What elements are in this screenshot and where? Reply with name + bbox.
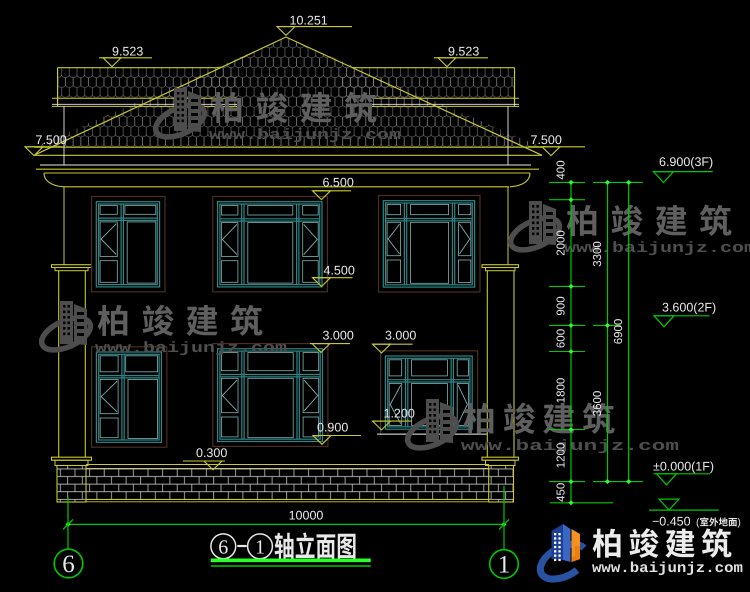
svg-text:www.baijunjz.com: www.baijunjz.com: [592, 561, 743, 577]
svg-text:0.300: 0.300: [196, 446, 227, 460]
svg-text:7.500: 7.500: [531, 133, 562, 147]
svg-text:(: (: [696, 518, 700, 529]
svg-text:1200: 1200: [556, 443, 568, 469]
svg-text:3300: 3300: [592, 241, 604, 267]
svg-text:6.900(3F): 6.900(3F): [659, 155, 713, 169]
svg-text:10000: 10000: [289, 509, 324, 523]
svg-text:600: 600: [556, 329, 568, 348]
svg-text:0.900: 0.900: [317, 421, 348, 435]
svg-text:450: 450: [556, 483, 568, 502]
svg-text:1: 1: [255, 537, 265, 559]
svg-text:6: 6: [218, 537, 228, 559]
svg-text:3.600(2F): 3.600(2F): [662, 301, 716, 315]
svg-text:9.523: 9.523: [448, 45, 479, 59]
svg-text:±0.000(1F): ±0.000(1F): [653, 459, 714, 473]
svg-text:6900: 6900: [613, 319, 625, 345]
svg-text:4.500: 4.500: [324, 264, 355, 278]
svg-text:10.251: 10.251: [290, 14, 328, 28]
svg-text:3.000: 3.000: [323, 329, 354, 343]
svg-text:2000: 2000: [556, 230, 568, 256]
svg-text:1.200: 1.200: [384, 407, 415, 421]
svg-text:7.500: 7.500: [36, 133, 67, 147]
svg-text:3.000: 3.000: [385, 329, 416, 343]
svg-text:900: 900: [556, 296, 568, 315]
svg-text:1800: 1800: [556, 378, 568, 404]
svg-text:6: 6: [62, 551, 75, 578]
svg-text:): ): [738, 518, 741, 529]
svg-text:www.baijunjz.com: www.baijunjz.com: [95, 340, 287, 357]
svg-text:www.baijunjz.com: www.baijunjz.com: [209, 127, 401, 144]
svg-text:400: 400: [556, 160, 568, 179]
svg-text:6.500: 6.500: [323, 176, 354, 190]
svg-text:3600: 3600: [592, 391, 604, 417]
svg-text:9.523: 9.523: [112, 45, 143, 59]
svg-text:www.baijunjz.com: www.baijunjz.com: [461, 438, 679, 455]
svg-text:−0.450: −0.450: [652, 515, 691, 529]
svg-text:1: 1: [498, 552, 511, 579]
